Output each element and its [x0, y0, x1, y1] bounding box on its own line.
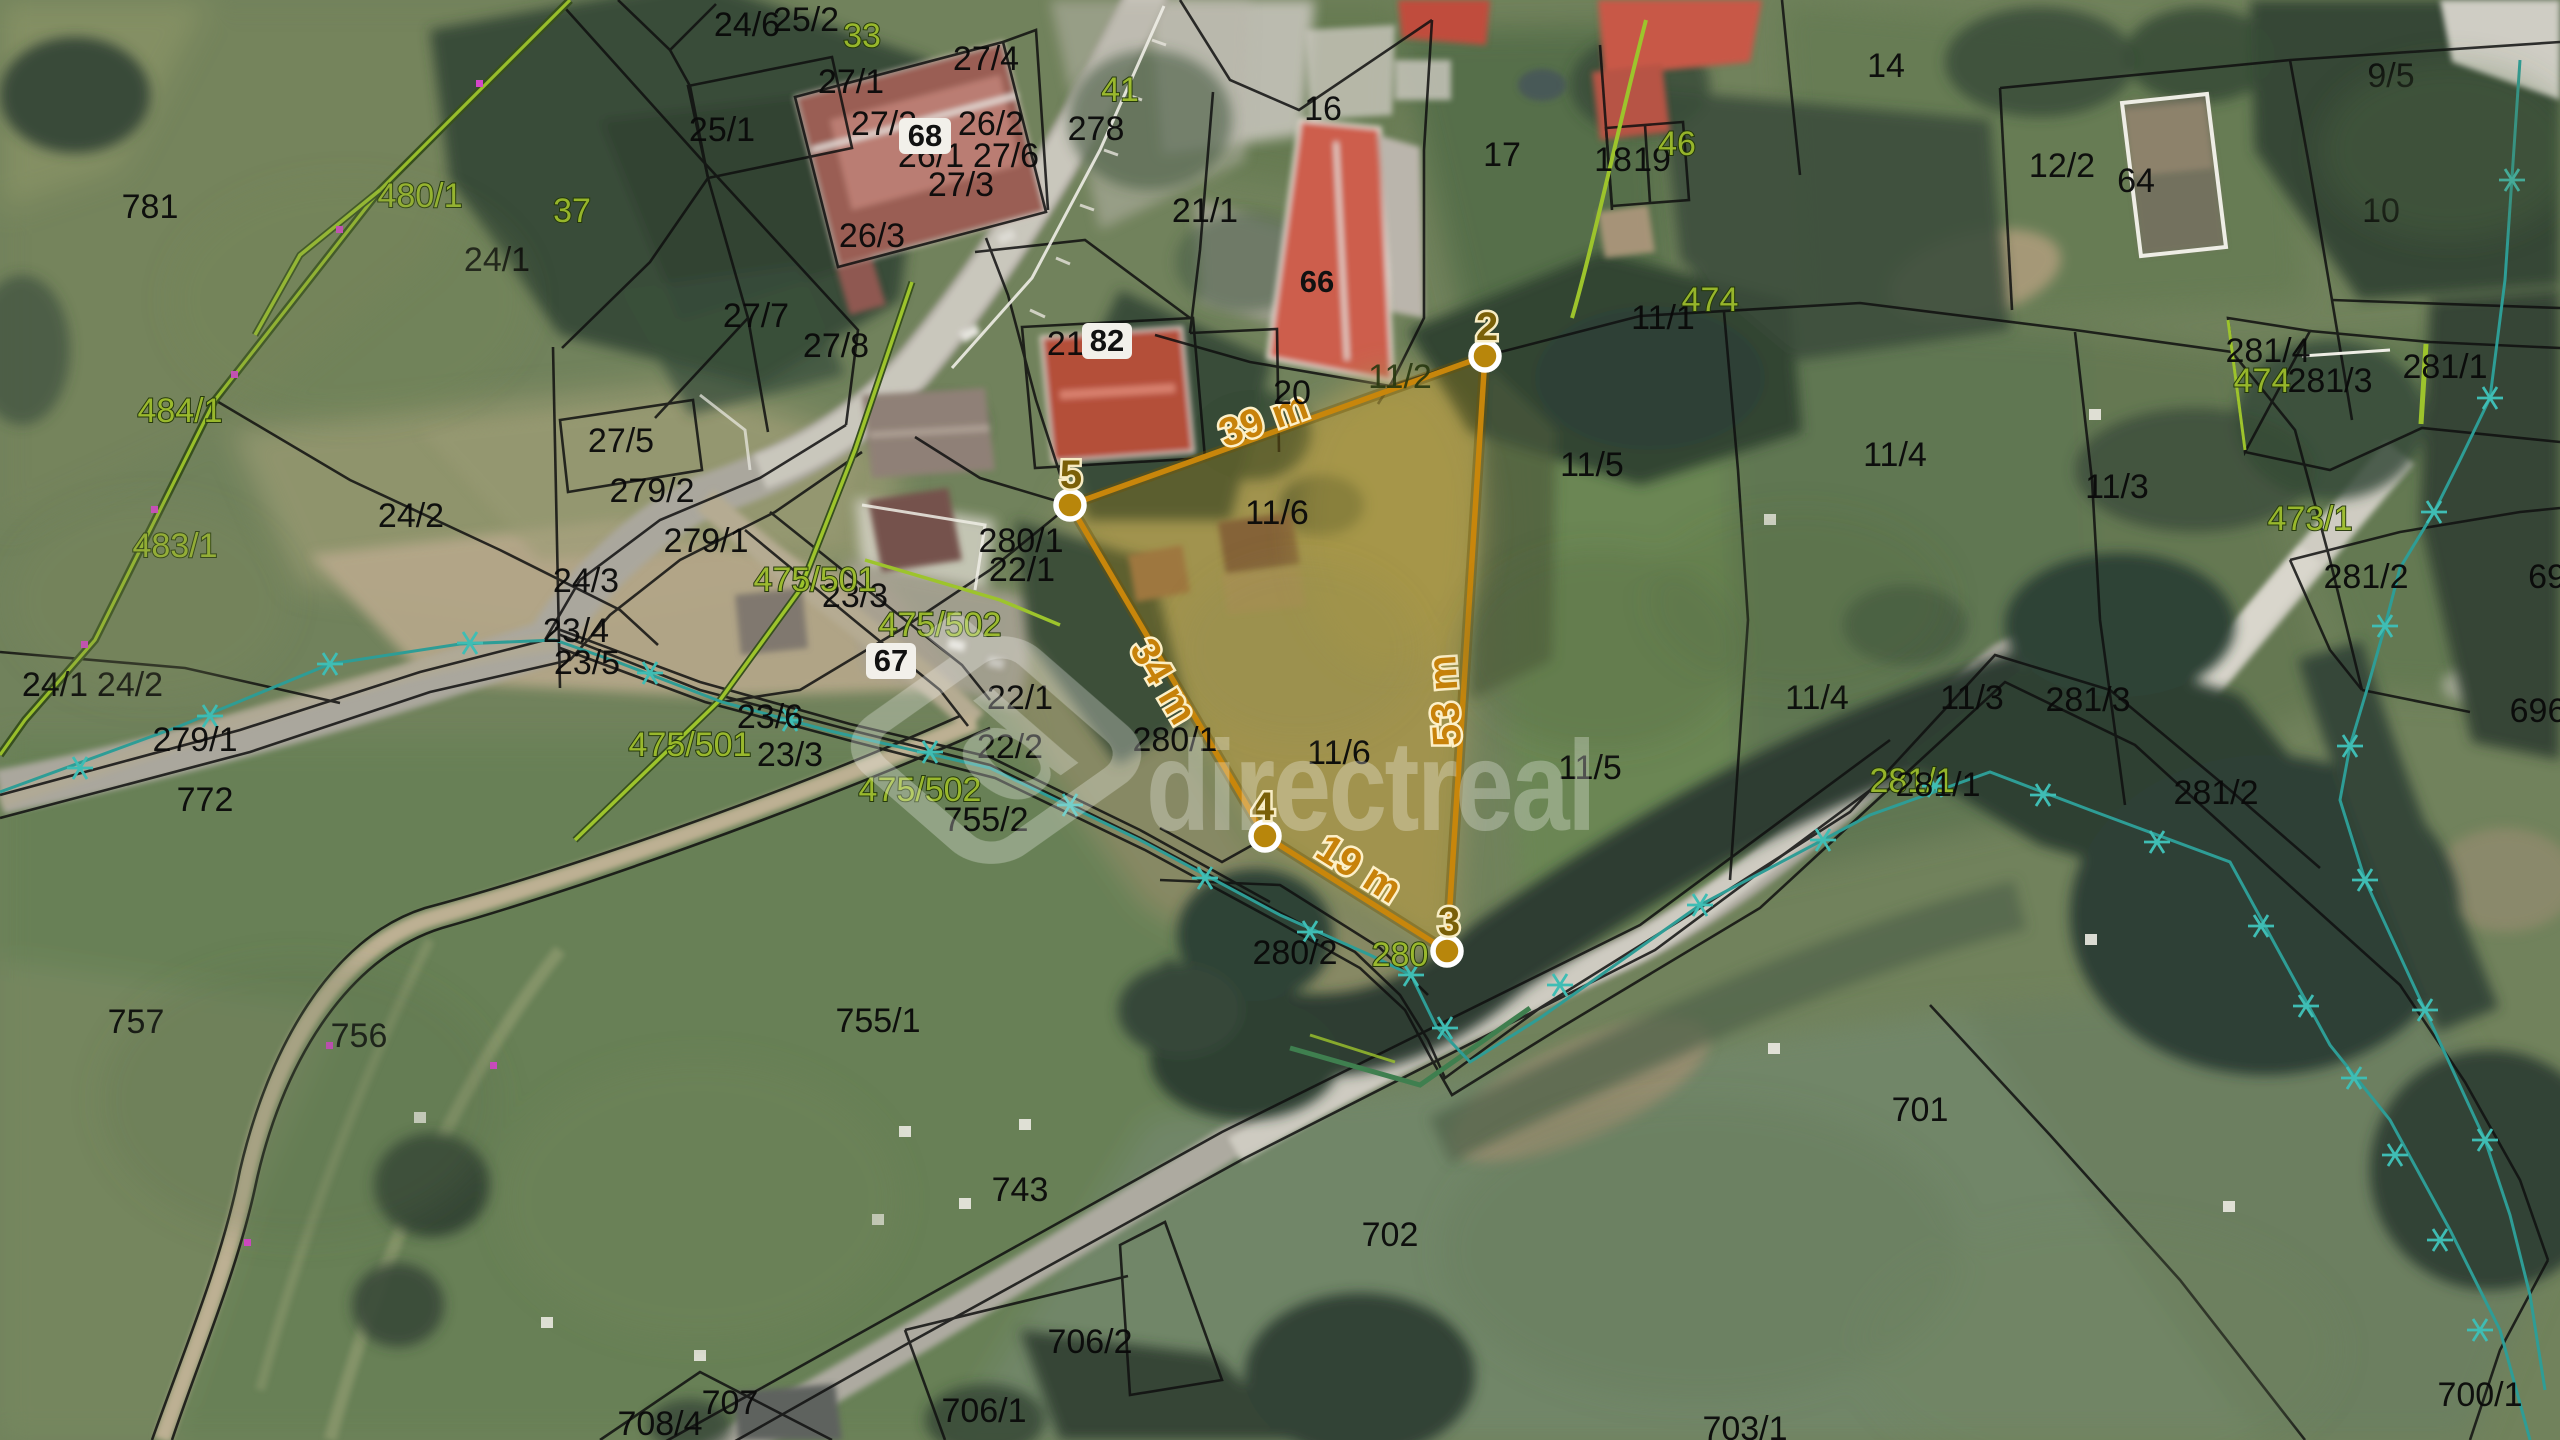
svg-text:11/3: 11/3 [1940, 679, 2004, 717]
svg-text:66: 66 [1300, 264, 1334, 299]
svg-text:82: 82 [1090, 323, 1124, 358]
svg-text:directreal: directreal [1146, 714, 1594, 857]
svg-text:27/4: 27/4 [953, 40, 1019, 78]
svg-text:473/1: 473/1 [2267, 500, 2352, 538]
svg-text:772: 772 [177, 781, 234, 819]
svg-text:280/2: 280/2 [1252, 934, 1337, 972]
svg-text:281/1: 281/1 [2402, 348, 2487, 386]
svg-text:23/5: 23/5 [554, 644, 620, 682]
svg-text:701: 701 [1892, 1091, 1949, 1129]
svg-text:24/2: 24/2 [378, 497, 444, 535]
svg-text:696: 696 [2510, 692, 2560, 730]
svg-text:67: 67 [874, 643, 908, 678]
svg-text:27/1: 27/1 [818, 63, 884, 101]
svg-text:474: 474 [1682, 281, 1739, 319]
svg-text:281/3: 281/3 [2287, 362, 2372, 400]
svg-text:743: 743 [992, 1171, 1049, 1209]
svg-text:68: 68 [908, 118, 942, 153]
svg-text:475/501: 475/501 [754, 561, 877, 599]
svg-text:46: 46 [1658, 125, 1696, 163]
svg-text:26/3: 26/3 [839, 217, 905, 255]
svg-text:24/3: 24/3 [553, 562, 619, 600]
svg-text:11/4: 11/4 [1863, 436, 1927, 474]
svg-text:41: 41 [1101, 71, 1139, 109]
svg-text:33: 33 [843, 17, 881, 55]
svg-text:280: 280 [1372, 936, 1429, 974]
svg-text:25/1: 25/1 [689, 111, 755, 149]
svg-text:755/1: 755/1 [835, 1002, 920, 1040]
svg-text:474: 474 [2234, 362, 2291, 400]
svg-text:707: 707 [702, 1384, 759, 1422]
svg-text:20: 20 [1273, 374, 1311, 412]
svg-text:484/1: 484/1 [137, 392, 222, 430]
svg-text:475/501: 475/501 [629, 726, 752, 764]
svg-text:700/1: 700/1 [2437, 1376, 2522, 1414]
svg-text:3: 3 [1438, 900, 1460, 944]
svg-text:2: 2 [1476, 305, 1498, 349]
svg-text:278: 278 [1068, 110, 1125, 148]
svg-text:25/2: 25/2 [773, 1, 839, 39]
svg-text:279/2: 279/2 [609, 472, 694, 510]
svg-text:16: 16 [1304, 90, 1342, 128]
svg-text:281/2: 281/2 [2173, 774, 2258, 812]
svg-text:69: 69 [2528, 558, 2560, 596]
svg-text:281/3: 281/3 [2045, 681, 2130, 719]
svg-text:706/2: 706/2 [1047, 1323, 1132, 1361]
svg-text:27/7: 27/7 [723, 297, 789, 335]
svg-text:22/1: 22/1 [989, 551, 1055, 589]
svg-text:706/1: 706/1 [941, 1392, 1026, 1430]
svg-text:27/8: 27/8 [803, 327, 869, 365]
svg-text:37: 37 [553, 192, 591, 230]
svg-text:281/1: 281/1 [1895, 766, 1980, 804]
svg-text:703/1: 703/1 [1702, 1410, 1787, 1440]
svg-text:27/5: 27/5 [588, 422, 654, 460]
svg-text:21/1: 21/1 [1172, 192, 1238, 230]
svg-text:781: 781 [122, 188, 179, 226]
svg-text:11/2: 11/2 [1368, 358, 1432, 396]
svg-text:281/2: 281/2 [2323, 558, 2408, 596]
svg-text:279/1: 279/1 [152, 721, 237, 759]
svg-text:23/3: 23/3 [757, 736, 823, 774]
svg-text:702: 702 [1362, 1216, 1419, 1254]
svg-text:12/2: 12/2 [2029, 147, 2095, 185]
svg-text:11/3: 11/3 [2085, 468, 2149, 506]
svg-text:27/3: 27/3 [928, 166, 994, 204]
svg-text:24/6: 24/6 [714, 6, 780, 44]
svg-text:11/6: 11/6 [1245, 494, 1309, 532]
svg-text:708/4: 708/4 [617, 1405, 702, 1440]
svg-text:5: 5 [1060, 453, 1082, 497]
svg-text:14: 14 [1867, 47, 1905, 85]
svg-text:11/5: 11/5 [1560, 446, 1624, 484]
svg-text:64: 64 [2117, 162, 2155, 200]
svg-text:18: 18 [1594, 141, 1632, 179]
svg-text:279/1: 279/1 [663, 522, 748, 560]
svg-text:17: 17 [1483, 136, 1521, 174]
